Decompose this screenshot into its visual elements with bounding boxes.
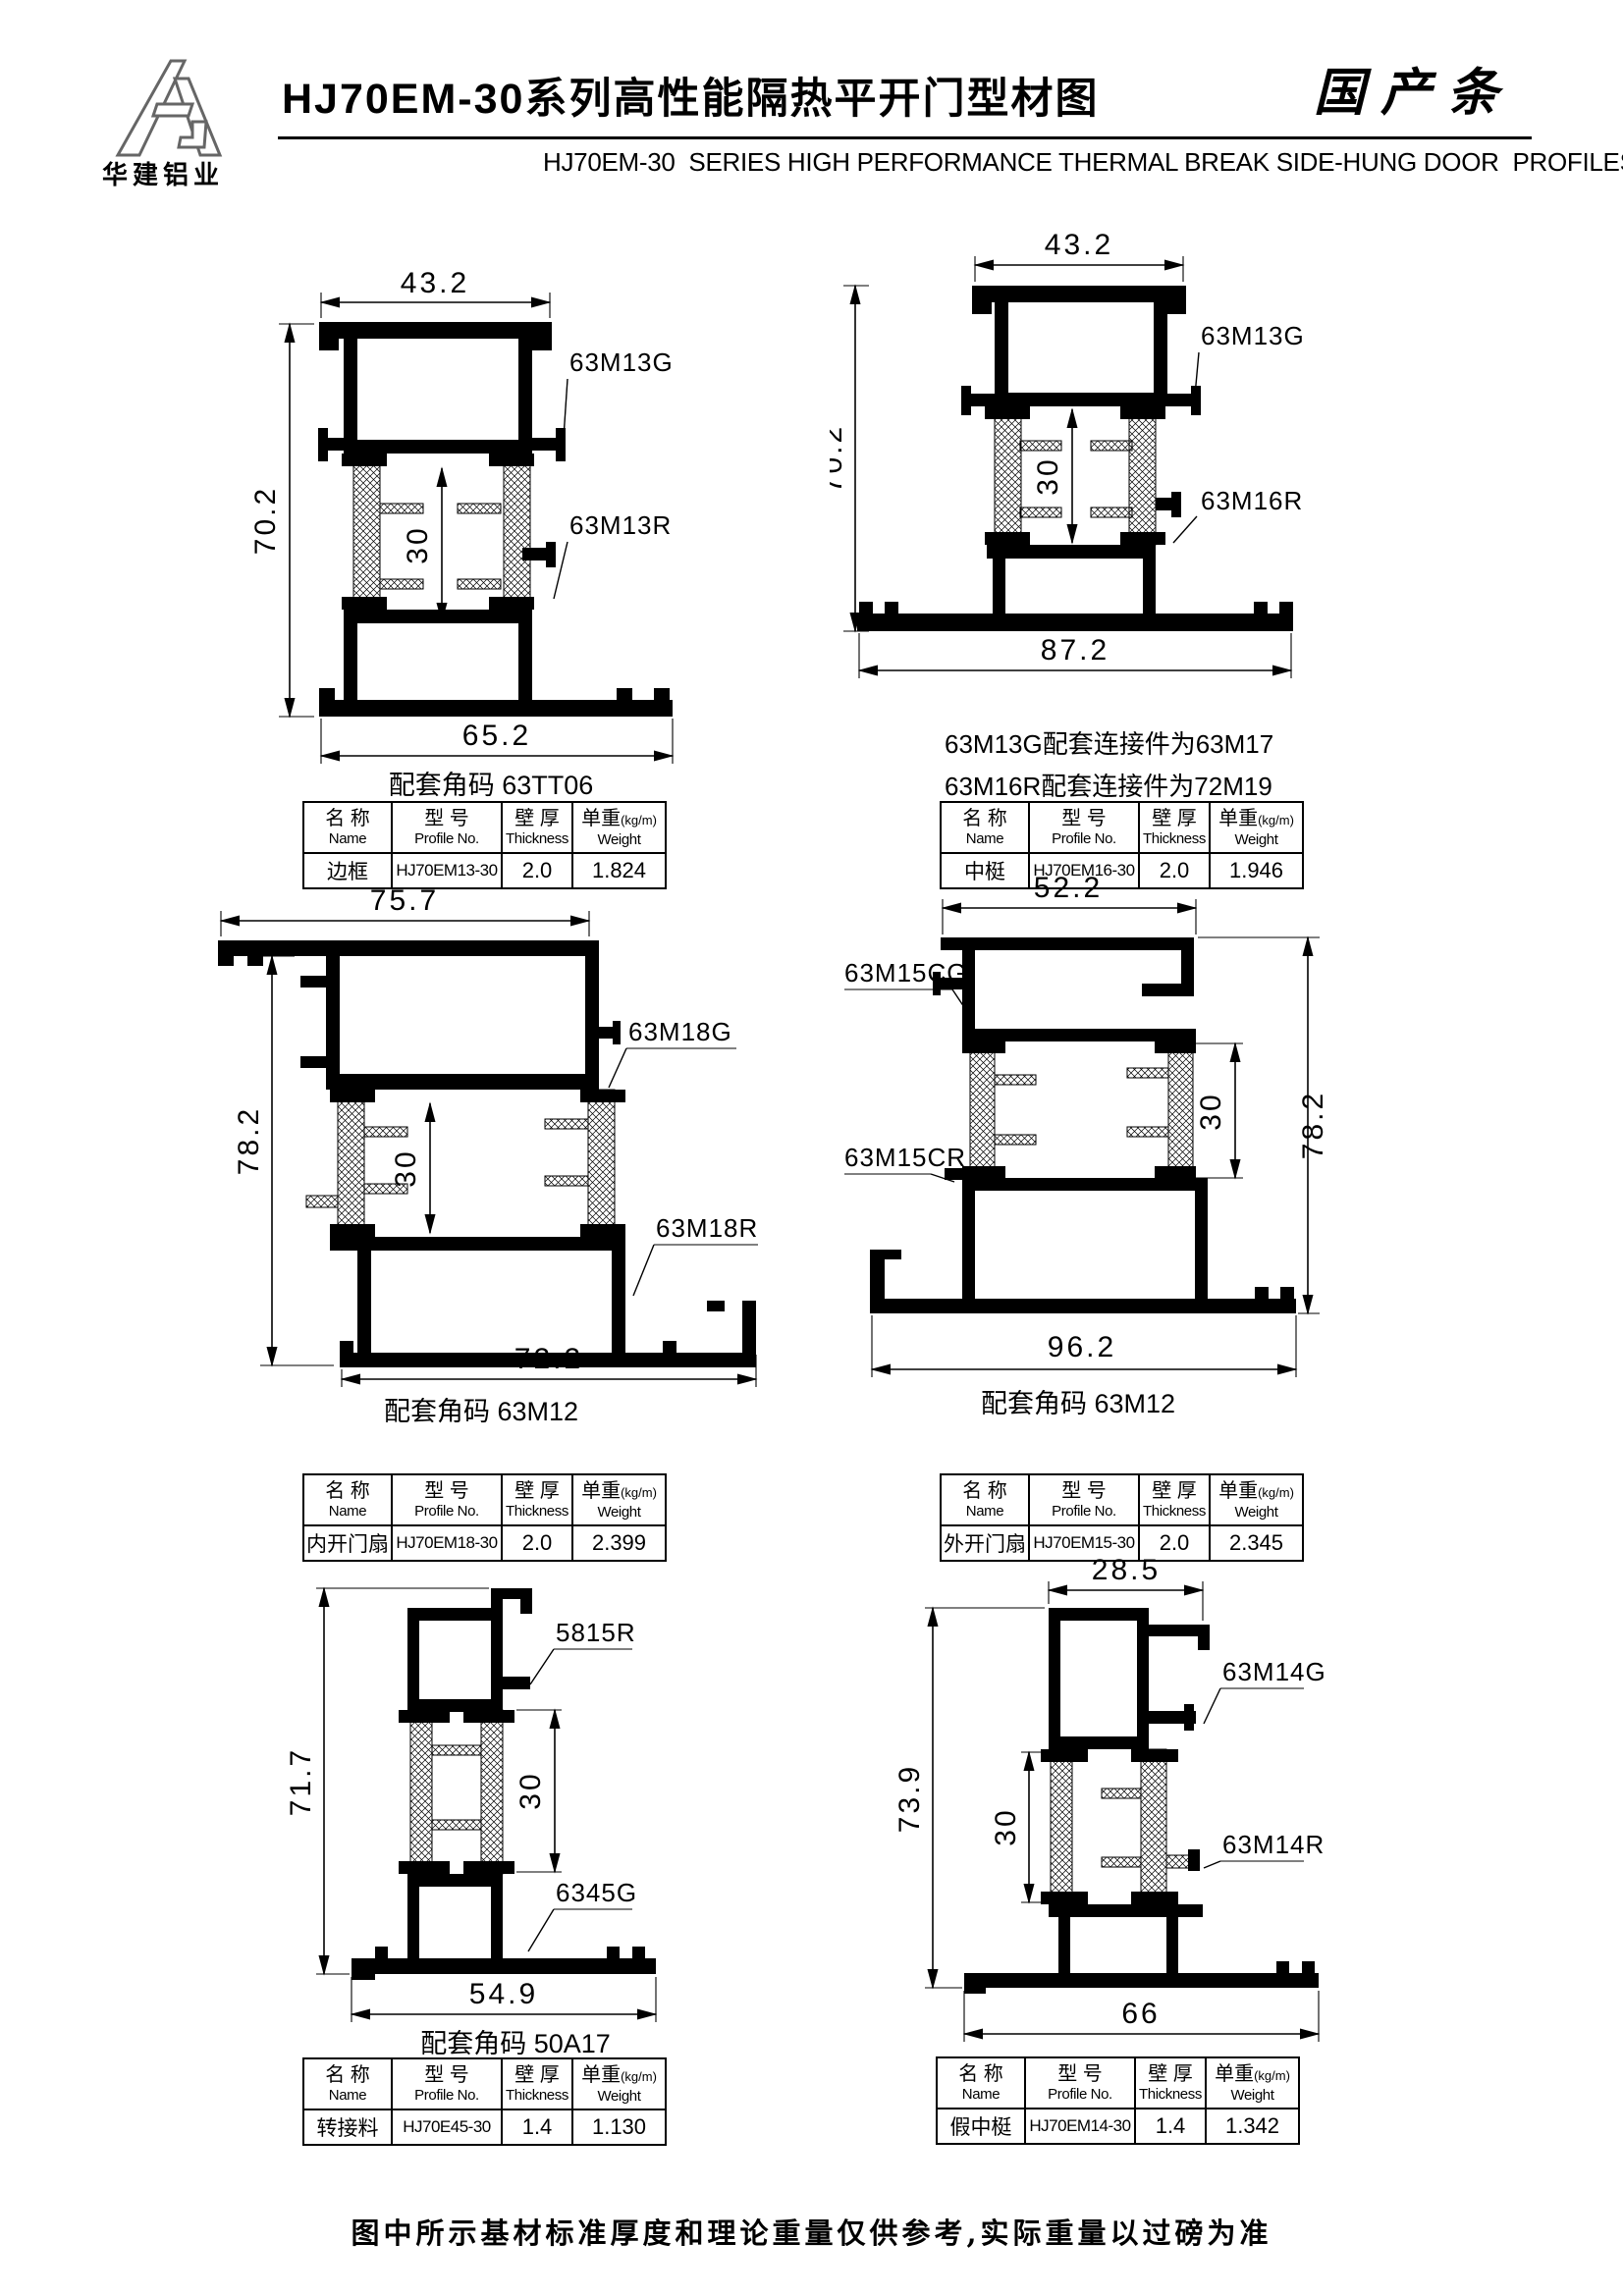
caption-outward-sash: 配套角码 63M12 <box>950 1382 1206 1420</box>
cell-weight: 2.399 <box>572 1525 666 1561</box>
dim-side: 71.7 <box>285 1747 317 1816</box>
part-labels: 63M18G 63M18R <box>609 1017 758 1296</box>
th-thickness: 壁 厚Thickness <box>502 802 572 853</box>
dim-inner: 30 <box>514 1771 547 1809</box>
part-label-b: 63M15CR <box>844 1143 966 1172</box>
dim-side: 78.2 <box>1297 1091 1329 1159</box>
th-weight: 单重(kg/m)Weight <box>572 1474 666 1525</box>
drawing-adapter-section: 71.7 30 54.9 5815R 6345G <box>226 1561 717 2030</box>
th-model: 型 号Profile No. <box>392 2058 502 2109</box>
th-thickness: 壁 厚Thickness <box>1139 802 1210 853</box>
cell-name: 转接料 <box>303 2109 392 2145</box>
dimensions: 75.7 78.2 30 72.2 <box>221 884 756 1387</box>
part-label-a: 63M13G <box>569 347 674 377</box>
th-name: 名 称Name <box>941 802 1029 853</box>
dim-top: 28.5 <box>1092 1554 1161 1586</box>
th-thickness: 壁 厚Thickness <box>502 2058 572 2109</box>
dim-bottom: 66 <box>1121 1998 1160 2030</box>
dim-top: 52.2 <box>1034 874 1103 904</box>
th-thickness: 壁 厚Thickness <box>1139 1474 1210 1525</box>
dim-side: 78.2 <box>233 1106 265 1175</box>
dim-side: 70.2 <box>830 424 848 493</box>
logo-hook <box>179 122 206 147</box>
part-labels: 63M13G 63M13R <box>554 347 674 599</box>
dim-bottom: 65.2 <box>462 720 531 752</box>
th-weight: 单重(kg/m)Weight <box>572 802 666 853</box>
part-label-a: 5815R <box>556 1618 636 1647</box>
header-divider <box>278 136 1532 139</box>
profile-geometry <box>218 940 756 1367</box>
page-subtitle: HJ70EM-30 SERIES HIGH PERFORMANCE THERMA… <box>543 147 1531 178</box>
caption-mullion-a: 63M13G配套连接件为63M17 <box>945 724 1239 761</box>
cell-weight: 1.130 <box>572 2109 666 2145</box>
dim-top: 43.2 <box>1045 229 1113 261</box>
cell-thickness: 1.4 <box>502 2109 572 2145</box>
part-label-b: 63M14R <box>1222 1830 1325 1859</box>
caption-frame: 配套角码 63TT06 <box>363 764 619 802</box>
part-labels: 63M15CG 63M15CR <box>844 958 968 1182</box>
drawing-mullion-section: 43.2 70.2 30 87.2 63M13G 63M16R <box>830 221 1399 712</box>
drawing-inward-sash-section: 75.7 78.2 30 72.2 63M18G 63M18R <box>177 883 766 1414</box>
spec-table-false-mullion: 名 称Name 型 号Profile No. 壁 厚Thickness 单重(k… <box>936 2056 1300 2145</box>
th-model: 型 号Profile No. <box>1029 802 1139 853</box>
dim-inner: 30 <box>1195 1092 1227 1130</box>
part-labels: 63M14G 63M14R <box>1204 1657 1326 1868</box>
caption-mullion-b: 63M16R配套连接件为72M19 <box>945 767 1239 803</box>
dim-top: 43.2 <box>401 267 469 299</box>
drawing-sheet: 华建铝业 HJ70EM-30系列高性能隔热平开门型材图 国产条 HJ70EM-3… <box>0 0 1623 2296</box>
logo-crossbar <box>153 104 192 116</box>
part-label-b: 63M18R <box>656 1213 758 1243</box>
th-thickness: 壁 厚Thickness <box>502 1474 572 1525</box>
cell-model: HJ70E45-30 <box>392 2109 502 2145</box>
profile-geometry <box>870 937 1296 1313</box>
th-weight: 单重(kg/m)Weight <box>1210 1474 1303 1525</box>
part-label-a: 63M13G <box>1201 321 1305 350</box>
dim-inner: 30 <box>390 1148 422 1187</box>
part-labels: 63M13G 63M16R <box>1173 321 1305 543</box>
drawing-frame-section: 43.2 70.2 30 65.2 63M13G 63M13R <box>226 236 756 771</box>
part-label-b: 63M16R <box>1201 486 1303 515</box>
th-weight: 单重(kg/m)Weight <box>1210 802 1303 853</box>
th-thickness: 壁 厚Thickness <box>1135 2057 1206 2109</box>
part-label-b: 63M13R <box>569 510 672 540</box>
th-model: 型 号Profile No. <box>1025 2057 1135 2109</box>
part-label-a: 63M15CG <box>844 958 968 988</box>
stamp-text: 国产条 <box>1314 51 1514 125</box>
dimensions: 71.7 30 54.9 <box>285 1588 656 2022</box>
logo-text: 华建铝业 <box>102 155 224 191</box>
spec-table-inward-sash: 名 称Name 型 号Profile No. 壁 厚Thickness 单重(k… <box>302 1473 667 1562</box>
caption-inward-sash: 配套角码 63M12 <box>353 1390 609 1428</box>
th-weight: 单重(kg/m)Weight <box>572 2058 666 2109</box>
part-label-b: 6345G <box>556 1878 637 1907</box>
company-logo <box>110 57 238 163</box>
dim-inner: 30 <box>1032 456 1064 495</box>
th-weight: 单重(kg/m)Weight <box>1206 2057 1299 2109</box>
spec-table-frame: 名 称Name 型 号Profile No. 壁 厚Thickness 单重(k… <box>302 801 667 889</box>
drawing-false-mullion-section: 28.5 73.9 30 66 63M14G 63M14R <box>884 1551 1394 2056</box>
drawing-outward-sash-section: 52.2 78.2 30 96.2 63M15CG 63M15CR <box>815 874 1394 1384</box>
spec-table-adapter: 名 称Name 型 号Profile No. 壁 厚Thickness 单重(k… <box>302 2057 667 2146</box>
th-name: 名 称Name <box>941 1474 1029 1525</box>
dim-top: 75.7 <box>370 884 439 917</box>
th-model: 型 号Profile No. <box>392 1474 502 1525</box>
dim-inner: 30 <box>402 525 434 563</box>
dim-bottom: 72.2 <box>514 1343 583 1375</box>
dim-side: 70.2 <box>249 486 282 555</box>
cell-thickness: 2.0 <box>502 1525 572 1561</box>
th-name: 名 称Name <box>303 1474 392 1525</box>
page-title: HJ70EM-30系列高性能隔热平开门型材图 <box>282 65 1099 126</box>
dim-bottom: 96.2 <box>1048 1331 1116 1363</box>
caption-adapter: 配套角码 50A17 <box>388 2022 643 2060</box>
th-model: 型 号Profile No. <box>1029 1474 1139 1525</box>
dim-bottom: 87.2 <box>1041 634 1109 667</box>
cell-name: 内开门扇 <box>303 1525 392 1561</box>
part-label-a: 63M14G <box>1222 1657 1326 1686</box>
cell-weight: 1.342 <box>1206 2109 1299 2144</box>
dim-side: 73.9 <box>893 1764 926 1833</box>
cell-model: HJ70EM18-30 <box>392 1525 502 1561</box>
th-name: 名 称Name <box>937 2057 1025 2109</box>
part-label-a: 63M18G <box>628 1017 732 1046</box>
cell-name: 假中梃 <box>937 2109 1025 2144</box>
cell-thickness: 1.4 <box>1135 2109 1206 2144</box>
th-model: 型 号Profile No. <box>392 802 502 853</box>
th-name: 名 称Name <box>303 802 392 853</box>
th-name: 名 称Name <box>303 2058 392 2109</box>
footer-note: 图中所示基材标准厚度和理论重量仅供参考,实际重量以过磅为准 <box>0 2211 1623 2252</box>
dim-bottom: 54.9 <box>469 1978 538 2010</box>
dim-inner: 30 <box>990 1807 1022 1845</box>
spec-table-outward-sash: 名 称Name 型 号Profile No. 壁 厚Thickness 单重(k… <box>940 1473 1304 1562</box>
cell-model: HJ70EM14-30 <box>1025 2109 1135 2144</box>
